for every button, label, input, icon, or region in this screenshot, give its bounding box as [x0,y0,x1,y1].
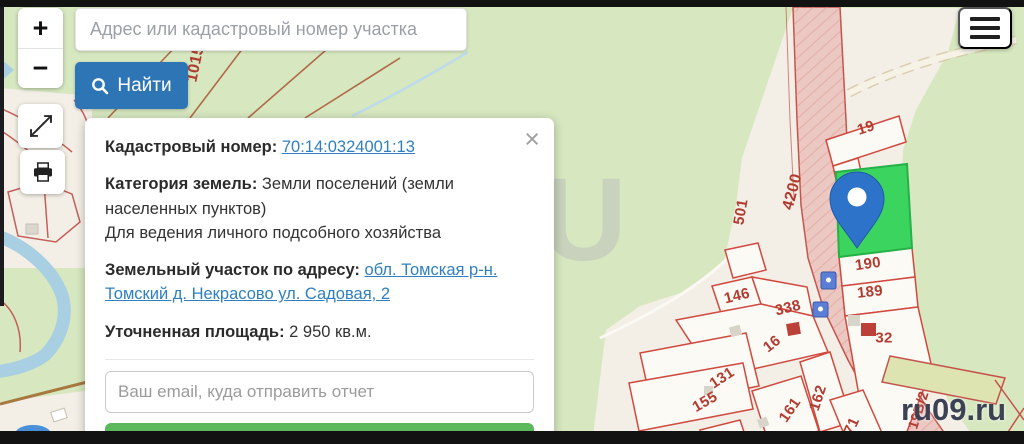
expand-icon [28,113,54,139]
cadastral-label: Кадастровый номер: [105,138,277,156]
email-field[interactable] [105,371,534,413]
print-button[interactable] [20,150,65,194]
zoom-in-button[interactable]: + [18,8,63,48]
menu-button[interactable] [958,7,1012,49]
app-window: 1015501420019190189321463381613115516116… [0,0,1024,444]
hamburger-icon [970,17,1000,21]
area-row: Уточненная площадь: 2 950 кв.м. [105,320,534,344]
zoom-controls: + − [18,8,63,88]
bottom-letterbox-bar [0,431,1024,444]
printer-icon [31,160,55,184]
category-row: Категория земель: Земли поселений (земли… [105,172,534,221]
address-row: Земельный участок по адресу: обл. Томска… [105,258,534,307]
popup-divider [105,359,534,360]
left-edge-strip [0,0,4,306]
area-value: 2 950 кв.м. [289,323,371,341]
parcel-info-popup: × Кадастровый номер: 70:14:0324001:13 Ка… [85,118,554,444]
cadastral-number-link[interactable]: 70:14:0324001:13 [282,138,415,156]
search-icon [91,77,109,95]
category-label: Категория земель: [105,175,257,193]
fullscreen-button[interactable] [18,104,63,148]
top-letterbox-bar [0,0,1024,7]
usage-row: Для ведения личного подсобного хозяйства [105,221,534,245]
find-button-label: Найти [117,75,171,97]
hamburger-icon [970,26,1000,30]
zoom-out-button[interactable]: − [18,48,63,88]
close-icon[interactable]: × [524,126,540,153]
search-input[interactable] [75,8,467,51]
hamburger-icon [970,35,1000,39]
address-label: Земельный участок по адресу: [105,261,360,279]
area-label: Уточненная площадь: [105,323,285,341]
find-button[interactable]: Найти [75,62,188,109]
cadastral-row: Кадастровый номер: 70:14:0324001:13 [105,135,534,159]
